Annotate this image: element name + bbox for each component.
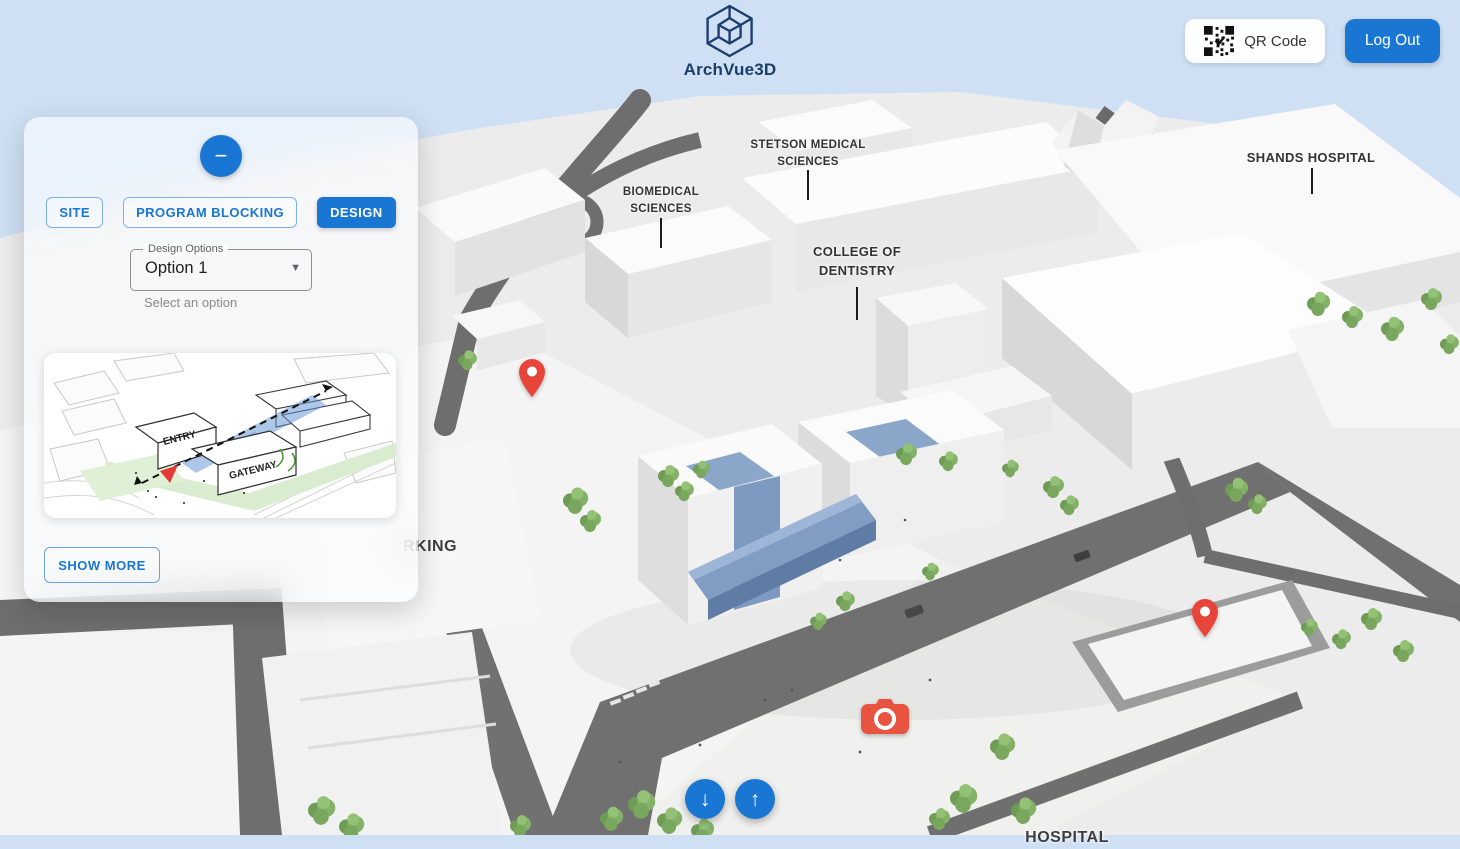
tab-design[interactable]: DESIGN: [317, 197, 396, 228]
qr-code-button[interactable]: QR Code: [1185, 19, 1325, 63]
minus-icon: −: [215, 145, 228, 167]
design-options-select-label: Design Options: [143, 243, 228, 256]
leader-line-dentistry: [856, 287, 858, 320]
map-pin-icon: [1190, 598, 1220, 638]
design-options-select[interactable]: Design Options Option 1 ▼: [130, 249, 312, 291]
design-sketch-image: ENTRY GATEWAY: [44, 353, 396, 518]
leader-line-shands: [1311, 168, 1313, 194]
map-pin-icon: [517, 358, 547, 398]
show-more-button[interactable]: SHOW MORE: [44, 547, 160, 583]
building-label-shands: SHANDS HOSPITAL: [1247, 149, 1376, 168]
building-label-hospital-partial: HOSPITAL: [1025, 826, 1109, 849]
map-pin-2[interactable]: [1190, 598, 1220, 643]
view-mode-tabs: SITE PROGRAM BLOCKING DESIGN: [24, 197, 418, 228]
hex-cube-logo-icon: [703, 4, 757, 58]
building-label-biomedical: BIOMEDICALSCIENCES: [623, 184, 699, 217]
app-logo: ArchVue3D: [684, 4, 777, 80]
building-label-dentistry: COLLEGE OFDENTISTRY: [813, 243, 901, 281]
qr-code-icon: [1203, 25, 1235, 57]
camera-icon: [859, 696, 911, 736]
logout-button[interactable]: Log Out: [1345, 19, 1440, 63]
app-title: ArchVue3D: [684, 60, 777, 80]
collapse-panel-button[interactable]: −: [200, 135, 242, 177]
design-options-helper-text: Select an option: [144, 295, 237, 310]
qr-button-label: QR Code: [1244, 33, 1307, 50]
map-pin-1[interactable]: [517, 358, 547, 403]
building-label-stetson: STETSON MEDICALSCIENCES: [750, 137, 865, 170]
design-option-thumbnail[interactable]: ENTRY GATEWAY: [44, 353, 396, 518]
arrow-down-icon: ↓: [700, 789, 711, 810]
caret-down-icon: ▼: [290, 262, 301, 274]
leader-line-stetson: [807, 170, 809, 200]
tab-site[interactable]: SITE: [46, 197, 103, 228]
arrow-up-icon: ↑: [750, 789, 761, 810]
nav-down-button[interactable]: ↓: [685, 779, 725, 819]
camera-viewpoint-marker[interactable]: [859, 696, 911, 741]
leader-line-biomedical: [660, 218, 662, 248]
design-options-selected-value: Option 1: [145, 259, 207, 278]
tab-program-blocking[interactable]: PROGRAM BLOCKING: [123, 197, 297, 228]
design-control-panel: − SITE PROGRAM BLOCKING DESIGN Design Op…: [24, 117, 418, 602]
nav-up-button[interactable]: ↑: [735, 779, 775, 819]
